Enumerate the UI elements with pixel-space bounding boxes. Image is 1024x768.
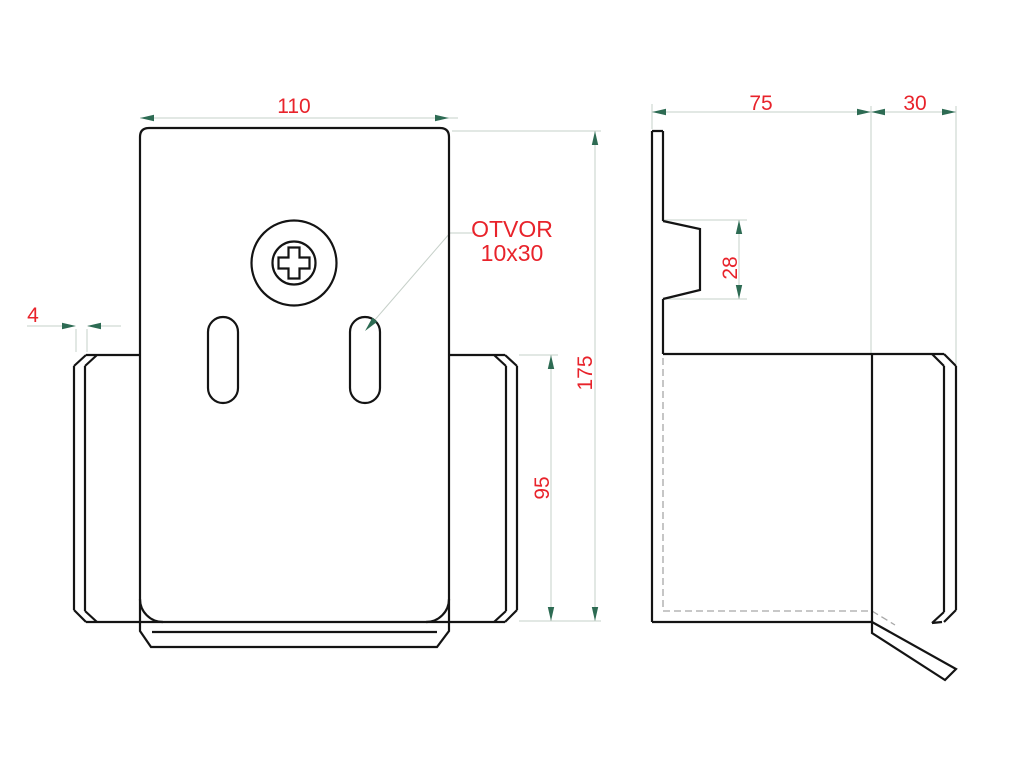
left-corner-fillet [140,599,163,622]
thickness-extension-lines [76,329,87,352]
total-height-dim-label: 175 [574,355,597,390]
wing-height-arrowhead-bottom [548,607,554,621]
boss-arrowhead-bottom [736,285,742,299]
screw-boss-profile [663,221,700,299]
depth-dim-label: 75 [749,92,772,115]
technical-drawing-canvas: 110 4 175 95 OTVOR 10x30 [0,0,1024,768]
bracket-front-outline [74,128,517,647]
hidden-lines [663,358,895,625]
total-height-arrowhead-top [592,131,598,145]
depth-arrowhead-right [857,109,871,115]
flange-dim-label: 30 [903,92,926,115]
front-dimension-lines [27,118,601,621]
slot-left [208,317,238,403]
hole-note-leader-line [367,233,473,329]
front-width-dim-label: 110 [277,95,310,118]
width-arrowhead-left [140,115,154,121]
phillips-cross-icon [279,248,310,279]
side-dimension-labels: 75 30 28 [719,92,927,280]
boss-height-dim-label: 28 [719,256,742,279]
boss-outer-circle [252,221,337,306]
right-wing-outline [449,355,517,622]
bracket-side-outline [652,131,956,623]
side-view: 75 30 28 [652,92,956,680]
wing-height-dim-label: 95 [531,476,554,499]
thickness-arrowhead-right [87,323,101,329]
hole-note-line1: OTVOR [471,216,553,242]
bottom-flange-strip [140,622,449,647]
front-view: 110 4 175 95 OTVOR 10x30 [27,95,601,647]
left-wing-outline [74,355,140,622]
back-plate-edge [652,131,663,622]
thickness-arrowhead-left [62,323,76,329]
front-wall-edge [932,354,956,623]
side-thickness-dim-label: 4 [27,304,39,327]
front-dimension-labels: 110 4 175 95 OTVOR 10x30 [27,95,597,500]
slot-right [350,317,380,403]
front-plate-outline [140,128,449,622]
right-corner-fillet [426,599,449,622]
hole-note-line2: 10x30 [481,240,544,266]
side-bottom-flange [872,622,956,680]
mounting-slots [208,317,380,403]
bracket-technical-drawing: 110 4 175 95 OTVOR 10x30 [0,0,1024,768]
flange-arrowhead-right [942,109,956,115]
flange-arrowhead-left [871,109,885,115]
width-arrowhead-right [435,115,449,121]
wing-height-arrowhead-top [548,355,554,369]
screw-hole [252,221,337,306]
total-height-arrowhead-bottom [592,607,598,621]
boss-arrowhead-top [736,220,742,234]
depth-arrowhead-left [652,109,666,115]
